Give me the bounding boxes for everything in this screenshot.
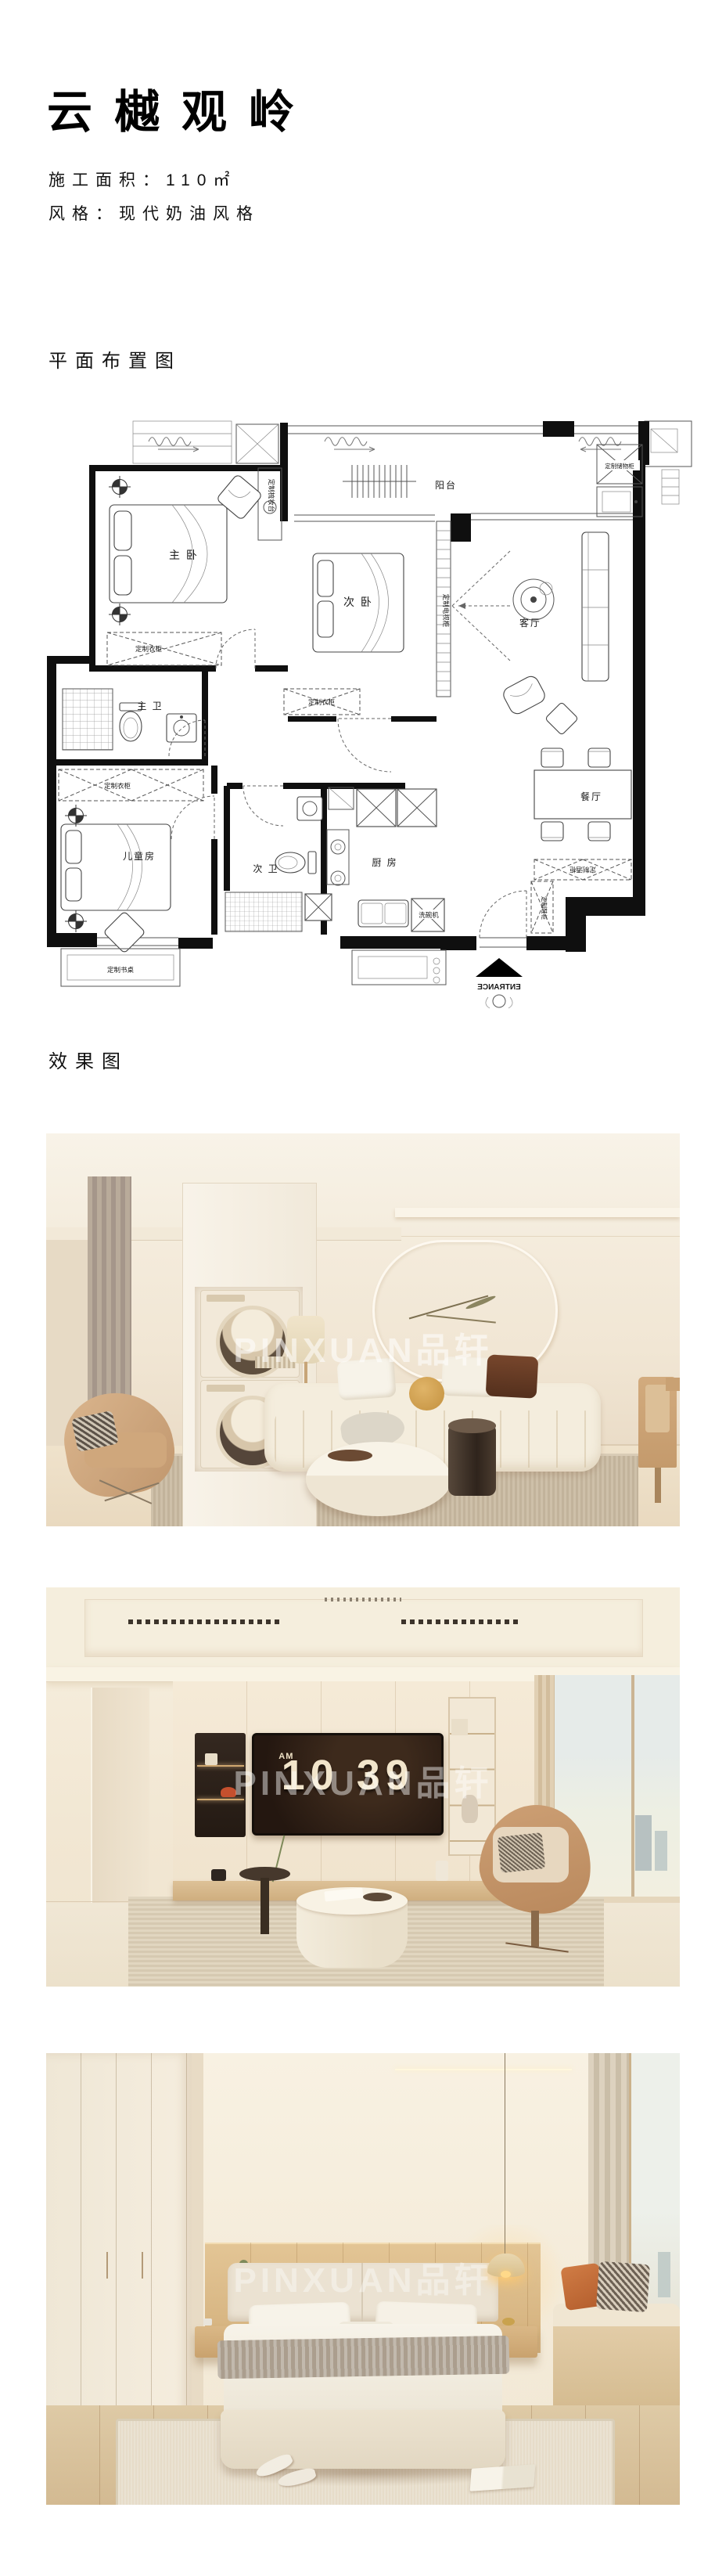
label-wardrobe-second: 定制衣柜 — [308, 698, 336, 706]
gray-throw — [217, 2335, 508, 2379]
render-photo-bedroom: PINXUAN品轩 — [46, 2053, 680, 2505]
room-label-kitchen: 厨 房 — [372, 856, 397, 868]
watermark: PINXUAN品轩 — [46, 1755, 680, 1805]
floorplan-section-title: 平面布置图 — [49, 345, 181, 373]
label-wardrobe-kids: 定制衣柜 — [104, 782, 131, 790]
dimension-marks — [149, 438, 621, 452]
pendant-cord — [505, 2053, 505, 2257]
renders-section-title: 效果图 — [49, 1046, 128, 1073]
bench-doll — [436, 1861, 448, 1881]
render-photo-tv-wall: AM 10 39 PINXUAN品轩 — [46, 1587, 680, 1987]
washer-panel — [207, 1385, 245, 1392]
room-label-living: 客厅 — [519, 617, 541, 629]
master-bed — [110, 505, 227, 603]
nightstand-left-decor — [203, 2318, 212, 2326]
living-room-furniture — [452, 532, 609, 735]
city-building-1 — [635, 1815, 652, 1871]
label-shoe-cabinet: 定制鞋柜 — [541, 896, 548, 920]
watermark: PINXUAN品轩 — [46, 1322, 680, 1372]
dining-table-corner — [666, 1378, 680, 1391]
label-dresser: 定制梳妆台 — [268, 479, 275, 513]
ceiling-recess — [84, 1599, 644, 1656]
led-strip — [395, 2069, 573, 2070]
room-label-master-bath: 主 卫 — [137, 701, 163, 712]
area-label: 施工面积：110㎡ — [49, 168, 236, 191]
label-dishwasher: 洗碗机 — [419, 911, 439, 919]
chair-pole — [531, 1911, 540, 1947]
label-wardrobe-master: 定制衣柜 — [135, 645, 163, 653]
render-photo-living-laundry: PINXUAN品轩 — [46, 1133, 680, 1526]
open-magazine — [469, 2464, 535, 2491]
ceiling-dot-vent — [325, 1598, 401, 1601]
chair-pillow — [498, 1832, 545, 1873]
dining-chair-leg — [655, 1468, 661, 1503]
label-wine-cabinet: 定制酒柜 — [569, 866, 597, 874]
coffee-table-oval — [306, 1442, 451, 1516]
ceiling-vent-strip-2 — [401, 1619, 522, 1625]
dining-chair-panel — [645, 1385, 670, 1432]
side-table-top — [448, 1418, 496, 1432]
bench-clock — [211, 1869, 226, 1881]
room-label-kids-room: 儿童房 — [123, 850, 156, 862]
dryer-panel — [207, 1295, 245, 1302]
kids-pillow — [103, 911, 146, 953]
handrail-line — [97, 1815, 142, 1817]
cabinet-books — [451, 1719, 467, 1735]
style-label: 风格：现代奶油风格 — [49, 201, 260, 225]
side-table-body — [448, 1425, 496, 1495]
wall-gap-shadow — [192, 2053, 203, 2423]
table-tray — [363, 1893, 392, 1901]
city-building-2 — [655, 1831, 667, 1871]
bed-base — [221, 2410, 506, 2469]
room-label-second-bedroom: 次 卧 — [343, 596, 373, 608]
wardrobe-kids-box — [59, 769, 203, 801]
room-label-balcony: 阳台 — [435, 479, 457, 491]
ceiling-vent-strip-1 — [128, 1619, 280, 1625]
label-tv-cabinet: 定制电视柜 — [442, 594, 450, 628]
wardrobe-seams — [46, 2053, 192, 2423]
room-label-master-bedroom: 主 卧 — [169, 549, 199, 561]
room-label-dining: 餐厅 — [580, 791, 602, 802]
watermark: PINXUAN品轩 — [46, 2252, 680, 2302]
balcony-rack — [343, 465, 416, 498]
room-label-second-bath: 次 卫 — [253, 863, 278, 874]
floorplan-drawing: 主 卧 次 卧 儿童房 主 卫 次 卫 厨 房 餐厅 客厅 阳台 定制衣柜 定制… — [23, 390, 696, 1016]
label-desk: 定制书桌 — [107, 966, 135, 974]
dark-table-pedestal — [260, 1878, 269, 1933]
ceiling — [46, 1133, 680, 1237]
master-bath-fixtures — [63, 689, 196, 750]
page-title: 云樾观岭 — [47, 75, 316, 141]
kids-bed — [61, 824, 171, 910]
window-seat-base — [553, 2326, 680, 2405]
kitchen-fixtures — [327, 787, 446, 985]
label-storage-cabinet: 定制储物柜 — [605, 462, 634, 470]
ceiling-cove — [395, 1208, 681, 1217]
poster-page: 云樾观岭 施工面积：110㎡ 风格：现代奶油风格 平面布置图 效果图 — [0, 0, 715, 2576]
entrance-label: ENTRANCE — [477, 983, 521, 992]
